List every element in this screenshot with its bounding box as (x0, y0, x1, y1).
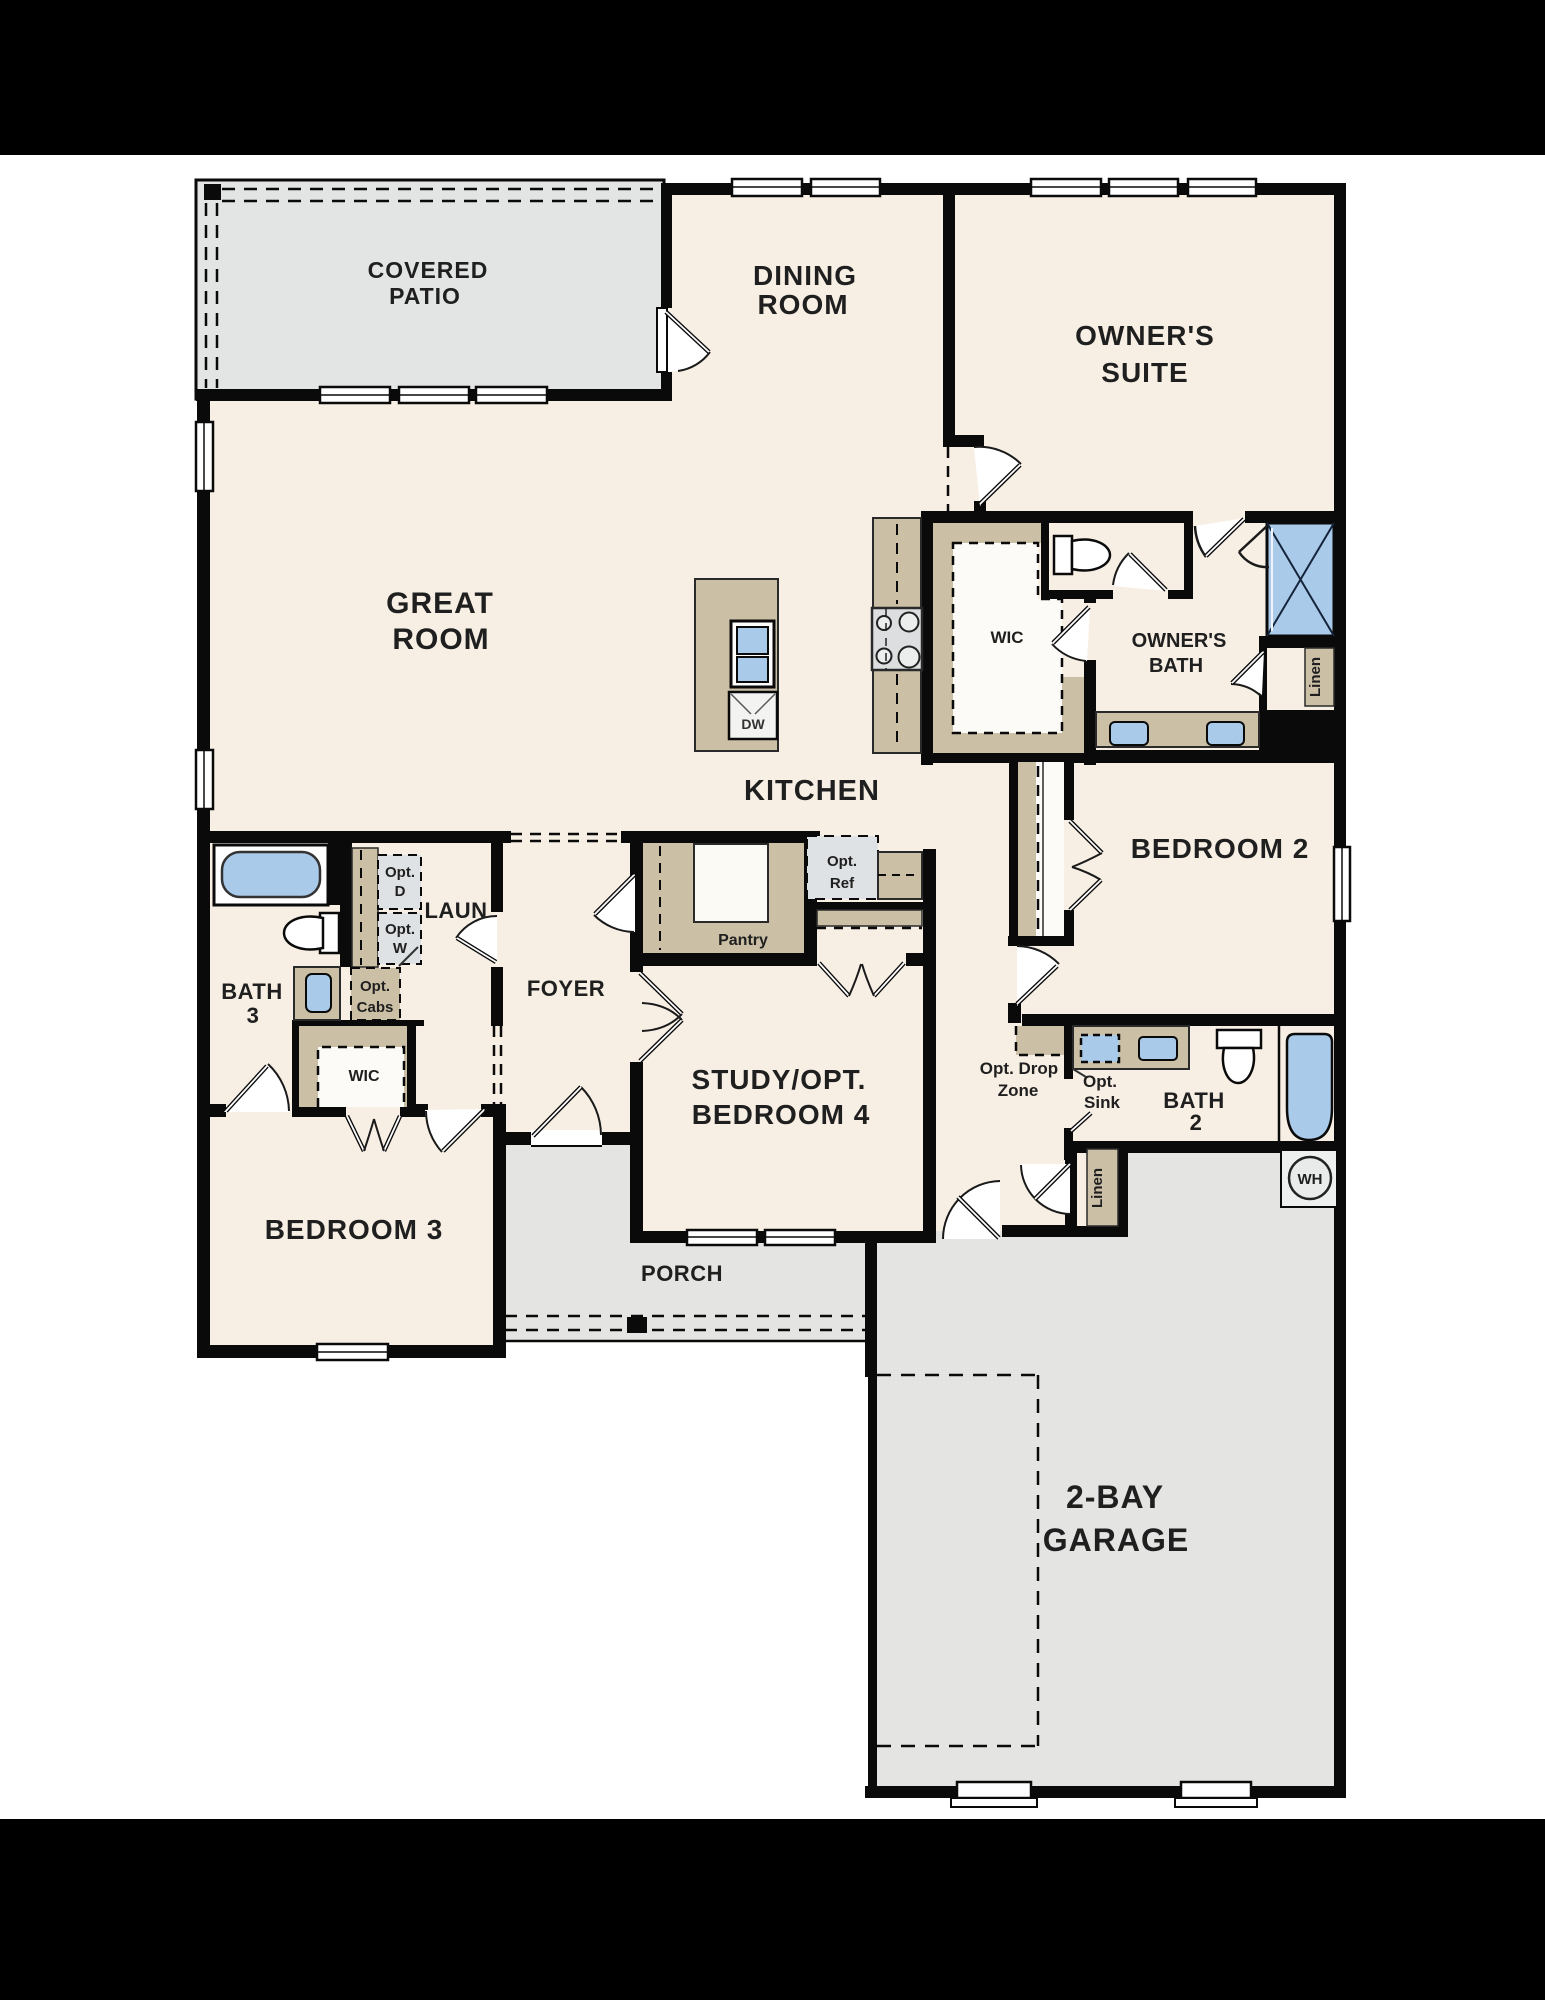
svg-text:Sink: Sink (1084, 1093, 1120, 1112)
svg-text:WH: WH (1298, 1171, 1323, 1188)
svg-text:BATH: BATH (221, 979, 282, 1004)
svg-text:KITCHEN: KITCHEN (744, 775, 880, 807)
svg-text:GREAT: GREAT (386, 587, 494, 620)
svg-text:OWNER'S: OWNER'S (1075, 320, 1215, 351)
svg-text:COVERED: COVERED (368, 257, 489, 283)
svg-text:FOYER: FOYER (527, 976, 605, 1001)
svg-text:3: 3 (247, 1003, 260, 1028)
svg-text:PATIO: PATIO (389, 283, 461, 309)
svg-text:LAUN: LAUN (424, 898, 487, 923)
svg-text:WIC: WIC (990, 628, 1023, 647)
svg-text:Linen: Linen (1089, 1168, 1106, 1208)
svg-text:ROOM: ROOM (392, 623, 489, 656)
svg-text:Opt. Drop: Opt. Drop (980, 1059, 1058, 1078)
svg-text:BATH: BATH (1149, 655, 1203, 677)
svg-text:2: 2 (1190, 1110, 1203, 1135)
svg-text:ROOM: ROOM (757, 289, 848, 320)
svg-text:Opt.: Opt. (360, 978, 390, 995)
svg-text:Zone: Zone (998, 1081, 1039, 1100)
svg-text:Linen: Linen (1307, 657, 1324, 697)
svg-text:Opt.: Opt. (827, 853, 857, 870)
svg-text:OWNER'S: OWNER'S (1132, 630, 1227, 652)
svg-text:DW: DW (741, 716, 765, 732)
svg-text:Cabs: Cabs (357, 999, 394, 1016)
svg-text:Ref: Ref (830, 875, 855, 892)
svg-text:WIC: WIC (348, 1068, 380, 1085)
svg-text:D: D (395, 883, 406, 900)
svg-text:BEDROOM 3: BEDROOM 3 (265, 1214, 444, 1245)
svg-text:Pantry: Pantry (718, 932, 768, 949)
svg-text:PORCH: PORCH (641, 1261, 723, 1286)
svg-text:Opt.: Opt. (385, 921, 415, 938)
svg-text:Opt.: Opt. (385, 864, 415, 881)
svg-text:GARAGE: GARAGE (1043, 1522, 1189, 1558)
svg-text:2-BAY: 2-BAY (1066, 1479, 1164, 1515)
svg-text:DINING: DINING (753, 260, 857, 291)
svg-text:BEDROOM 2: BEDROOM 2 (1131, 833, 1310, 864)
svg-text:W: W (393, 940, 408, 957)
svg-text:Opt.: Opt. (1083, 1072, 1117, 1091)
svg-text:BEDROOM 4: BEDROOM 4 (692, 1099, 871, 1130)
svg-text:SUITE: SUITE (1101, 357, 1188, 388)
svg-text:STUDY/OPT.: STUDY/OPT. (692, 1064, 867, 1095)
